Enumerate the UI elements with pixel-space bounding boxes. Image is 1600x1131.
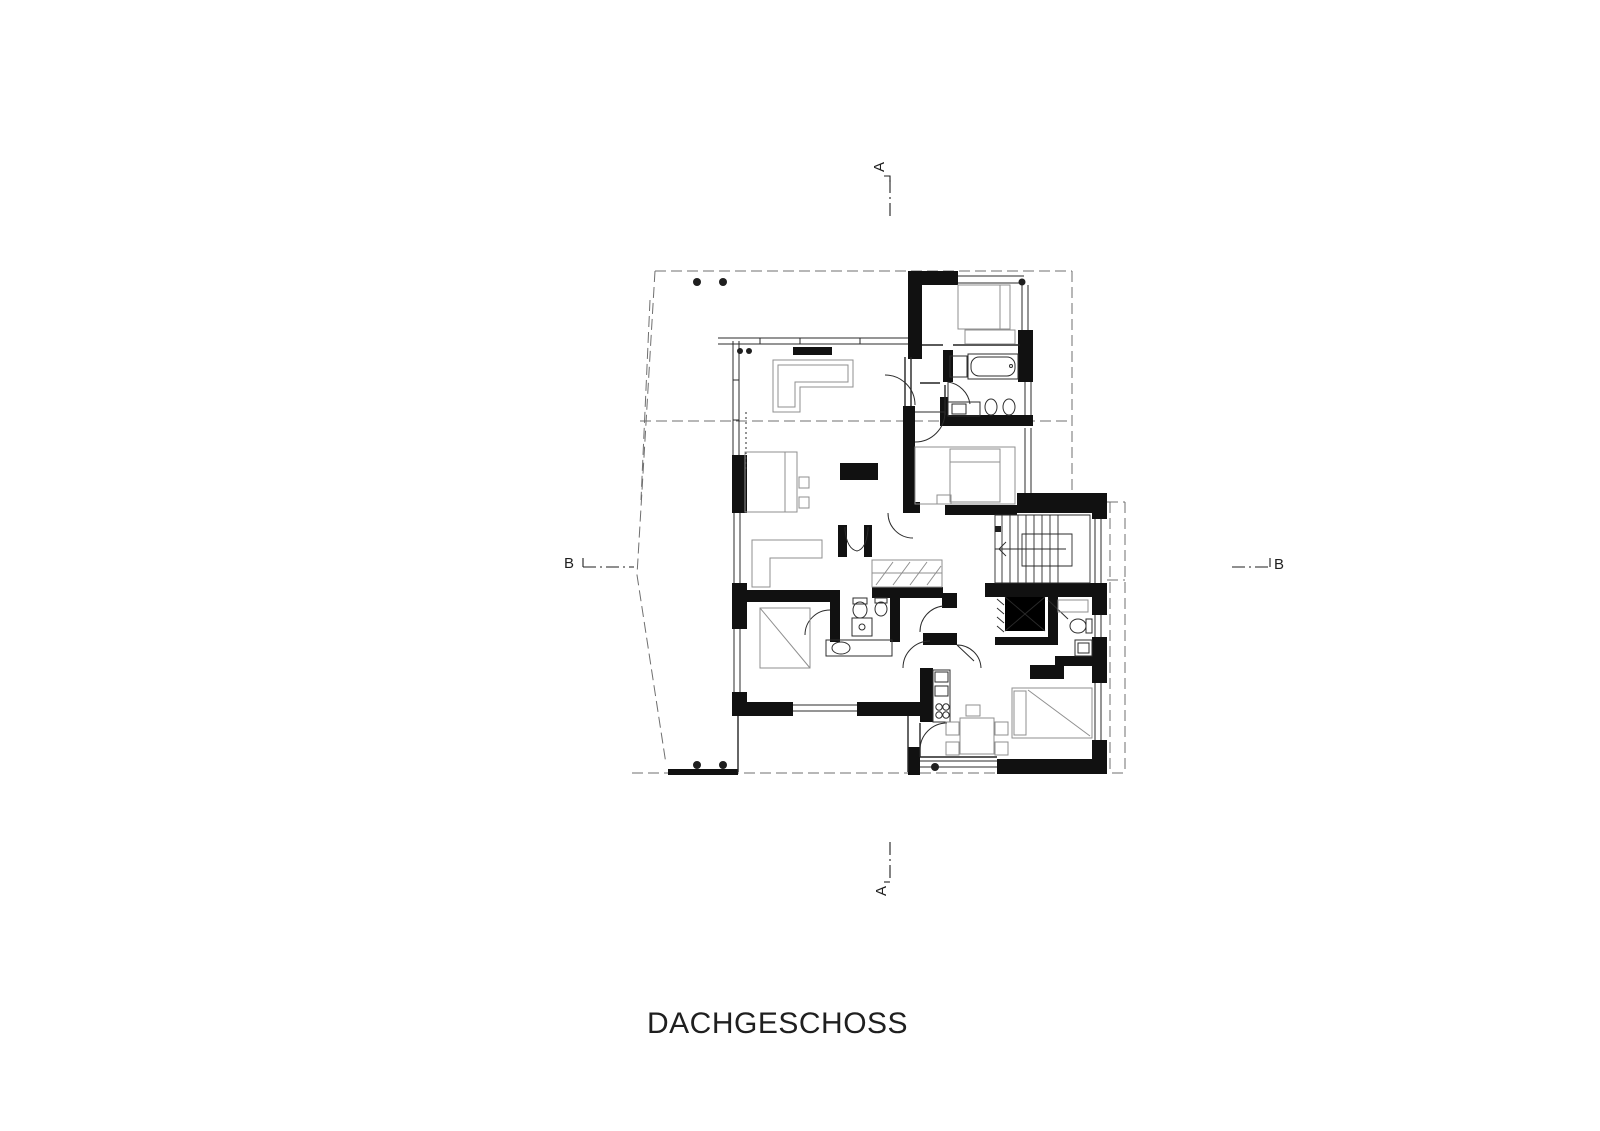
bath2-counter (826, 640, 892, 656)
bidet-ne (1003, 399, 1015, 415)
toilet-tank-2 (853, 598, 867, 604)
door-studio-entry (957, 645, 981, 668)
wall-corridor-block (923, 633, 957, 645)
wall-ne-right-pier (1018, 330, 1033, 382)
nightstand (799, 497, 809, 508)
wall-east-3 (1092, 637, 1107, 683)
shower-wc-inner (1078, 643, 1089, 653)
shower-drain-2 (859, 624, 865, 630)
wall-east-2 (1092, 583, 1107, 615)
chair (995, 742, 1008, 755)
door-bath-ne (948, 382, 970, 404)
wall-halldoor-jamb-l (838, 525, 847, 557)
bed-master (745, 452, 797, 512)
section-a-top-tick (884, 176, 890, 182)
section-marker-b-left: B (564, 555, 574, 572)
bed-ne (958, 285, 1010, 329)
roof-dot (693, 278, 701, 286)
bed-studio (1012, 688, 1092, 738)
terrace-edge-wall (668, 769, 738, 775)
sofa (773, 360, 853, 412)
section-marker-a-top: A (871, 162, 888, 172)
floor-plan-drawing: DACHGESCHOSS A A B B (0, 0, 1600, 1131)
void-diagonal (760, 608, 810, 668)
sofa-inner (778, 365, 848, 407)
roof-outline-dashed (632, 271, 1125, 773)
wall-corridor-jamb (942, 593, 957, 608)
burner (943, 704, 949, 710)
doors (805, 375, 1068, 750)
roof-dot (693, 761, 701, 769)
toilet-wc-tank (1086, 619, 1092, 633)
bathtub-inner (971, 357, 1015, 376)
burner (943, 712, 949, 718)
roof-edge-left (637, 271, 666, 764)
nightstand (937, 495, 951, 504)
bed-studio-diagonal (1028, 690, 1090, 736)
dining-table (960, 718, 994, 754)
wall-studio-bottom (997, 759, 1107, 774)
roof-overhang-right (1107, 502, 1125, 773)
terrace-dot (931, 763, 939, 771)
wall-bath2-right (890, 598, 900, 642)
wall-studio-step (908, 747, 920, 775)
labels: DACHGESCHOSS A A B B (564, 162, 1284, 1040)
roof-edge-left-inner (641, 300, 650, 500)
partition-living-hall (905, 357, 911, 406)
wall-bedroom-bottom-r (945, 505, 1017, 515)
stair-start-marker (995, 526, 1001, 532)
section-marker-a-bottom: A (873, 886, 890, 896)
wall-elevator-bottom (995, 637, 1058, 645)
wall-south-l2 (857, 702, 933, 716)
wall-bath-bottom (940, 415, 1033, 426)
bath2-sink (832, 642, 850, 654)
toilet-wc (1070, 619, 1086, 633)
wall-bath2-left (830, 602, 840, 642)
toilet-ne (985, 399, 997, 415)
wall-living-top-seg (793, 347, 832, 355)
elevator (997, 597, 1045, 632)
elevator-counterweight (1015, 624, 1035, 629)
sideboard (752, 540, 822, 587)
wc-shelf (1058, 600, 1088, 612)
staircase (995, 515, 1090, 583)
chair (966, 705, 980, 716)
nightstand (799, 477, 809, 488)
door-studio-terrace (920, 723, 947, 750)
wall-bedroom-left (903, 406, 915, 512)
elevator-door-hatch (997, 599, 1004, 632)
chair (995, 722, 1008, 735)
bed-studio-rail (1014, 691, 1026, 735)
wall-under-stairs (985, 583, 1107, 597)
wall-lowerroom-top (747, 590, 840, 602)
door-bath2 (805, 610, 830, 635)
wall-hall-bottom (872, 587, 943, 598)
burner (936, 712, 942, 718)
corner-dot (746, 348, 752, 354)
door-corridor-west (920, 606, 943, 632)
dresser-ne (965, 330, 1015, 344)
roof-dot (719, 761, 727, 769)
kitchen-sink (935, 672, 948, 682)
bed-mid-mattress (950, 449, 1000, 502)
vanity-sink (952, 404, 966, 414)
roof-dot (719, 278, 727, 286)
corner-dot (737, 348, 743, 354)
door-hall-south (888, 513, 913, 538)
kitchen-worktop (935, 686, 948, 696)
drawing-title: DACHGESCHOSS (647, 1007, 908, 1040)
shower-2 (852, 618, 872, 636)
bidet-2 (875, 602, 887, 616)
corner-dot (1019, 279, 1026, 286)
stair-railing (1022, 534, 1072, 566)
chair (946, 722, 959, 735)
door-apartment-sw (903, 641, 930, 668)
wall-east-1 (1092, 493, 1107, 519)
wall-ne-left (908, 271, 922, 359)
chimney-block (840, 463, 878, 480)
wall-studio-divider (1030, 665, 1064, 679)
wall-east-4 (1092, 740, 1107, 762)
chair (946, 742, 959, 755)
floor-plan-sheet: DACHGESCHOSS A A B B (0, 0, 1600, 1131)
bathtub-drain (1010, 365, 1013, 368)
wall-south-l1 (732, 702, 793, 716)
section-marker-b-right: B (1274, 556, 1284, 573)
burner (936, 704, 942, 710)
wall-west-2 (732, 583, 747, 629)
wall-wc-bottom (1055, 656, 1092, 666)
